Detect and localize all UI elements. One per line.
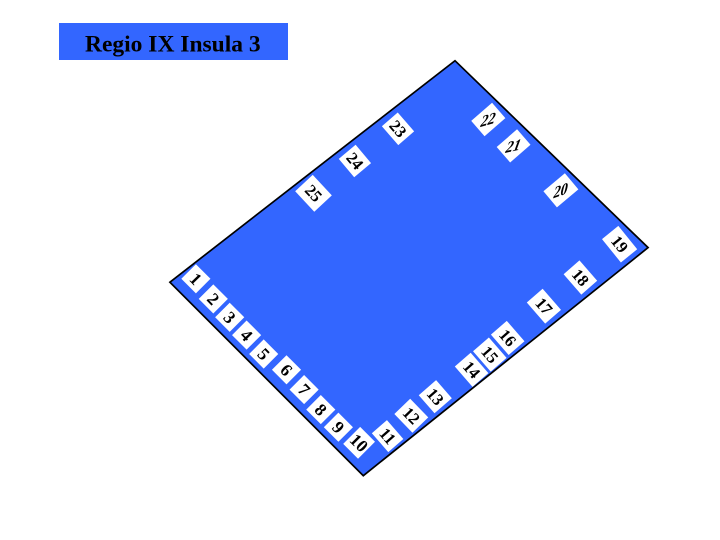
- svg-text:Regio IX Insula 3: Regio IX Insula 3: [85, 32, 261, 58]
